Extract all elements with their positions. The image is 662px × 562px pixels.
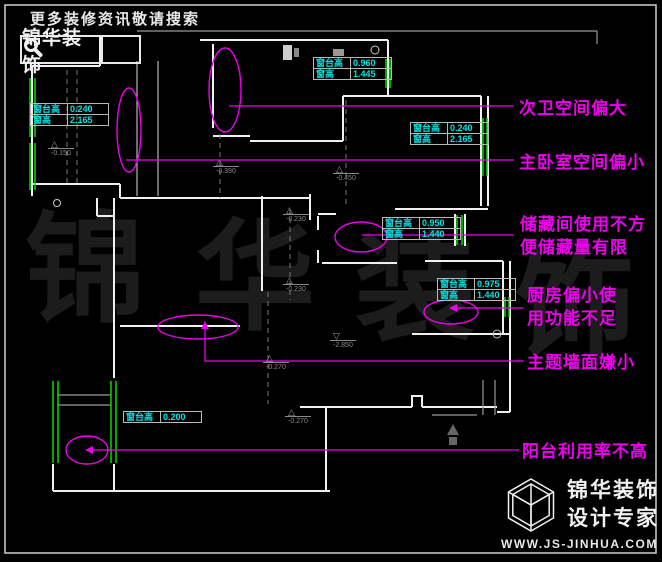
floor-plan-geometry bbox=[0, 0, 662, 562]
company-logo-cube-icon bbox=[502, 476, 560, 534]
annotation-label-secondary-bath: 次卫空间偏大 bbox=[519, 97, 627, 120]
search-icon bbox=[103, 37, 139, 62]
secondary-lines bbox=[57, 31, 597, 415]
annotation-label-balcony: 阳台利用率不高 bbox=[522, 440, 648, 463]
company-slogan: 设计专家 bbox=[567, 505, 659, 533]
window-height-table: 窗台高0.975 窗高1.440 bbox=[437, 278, 516, 301]
elevation-marker: △-0.450 bbox=[333, 165, 359, 182]
company-name-block: 锦华装饰 设计专家 bbox=[567, 477, 659, 533]
wardrobe-lines bbox=[137, 61, 158, 196]
fixture-circle bbox=[371, 46, 379, 54]
issue-ellipses bbox=[66, 48, 478, 464]
issue-ellipse-kitchen bbox=[424, 300, 478, 324]
annotation-label-master-bedroom: 主卧室空间偏小 bbox=[519, 151, 645, 174]
company-website: WWW.JS-JINHUA.COM bbox=[501, 537, 658, 551]
window-height-table: 窗台高0.200 bbox=[123, 411, 202, 423]
leader-feature-wall bbox=[205, 326, 524, 361]
elevation-marker: △-0.150 bbox=[48, 140, 74, 157]
search-logo-box: 锦华装饰 bbox=[20, 35, 141, 64]
window-height-table: 窗台高0.950 窗高1.440 bbox=[382, 217, 461, 240]
window-height-table: 窗台高0.240 窗高2.165 bbox=[410, 122, 489, 145]
issue-ellipse-storage bbox=[335, 222, 387, 252]
company-name: 锦华装饰 bbox=[567, 477, 659, 505]
elevation-marker: △-0.270 bbox=[263, 354, 289, 371]
elevation-marker: ▽-2.850 bbox=[330, 332, 356, 349]
door-knob-circle bbox=[54, 200, 61, 207]
elevation-marker: △-0.230 bbox=[283, 206, 309, 223]
annotation-label-feature-wall: 主题墙面嫌小 bbox=[527, 351, 635, 374]
entry-arrow-icon bbox=[447, 424, 459, 445]
annotation-label-kitchen: 厨房偏小使 用功能不足 bbox=[527, 284, 617, 330]
cad-drawing-canvas: 锦 华 装 饰 bbox=[0, 0, 662, 562]
elevation-marker: △-0.270 bbox=[285, 408, 311, 425]
annotation-label-storage: 储藏间使用不方 便储藏量有限 bbox=[520, 213, 646, 259]
elevation-marker: △-0.390 bbox=[213, 158, 239, 175]
border-frame bbox=[5, 5, 656, 553]
window-height-table: 窗台高0.240 窗高2.165 bbox=[30, 103, 109, 126]
elevation-marker: △-0.230 bbox=[283, 276, 309, 293]
window-height-table: 窗台高0.960 窗高1.445 bbox=[313, 57, 392, 80]
